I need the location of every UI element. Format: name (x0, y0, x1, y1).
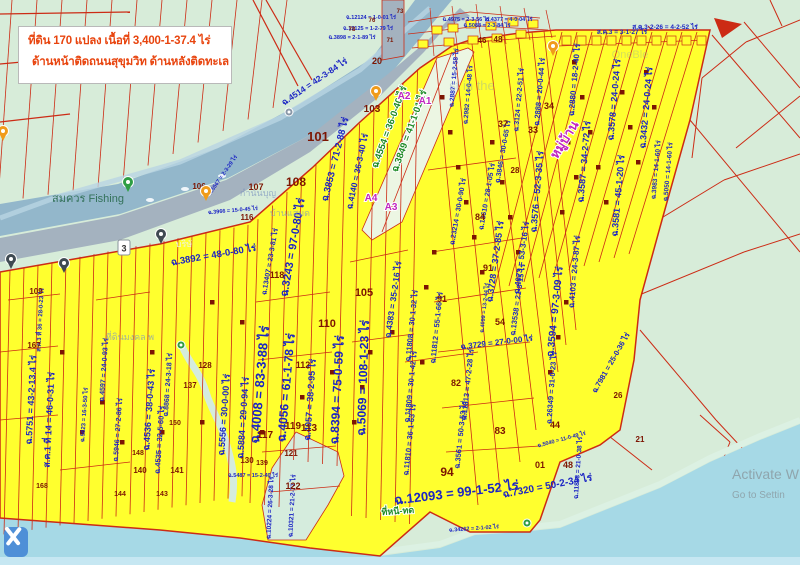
parcel-number: 119 (285, 421, 302, 432)
parcel-number: 37 (498, 119, 508, 129)
parcel-number: 01 (535, 460, 545, 470)
building-mark (210, 300, 215, 305)
parcel-number: 101 (307, 129, 329, 144)
parcel-number: 139 (256, 460, 268, 467)
building-mark (464, 200, 469, 205)
parcel-number: 150 (169, 420, 181, 427)
building-mark (490, 140, 495, 145)
parcel-area-label: ฉ.3898 = 2-1-89 ไร่ (329, 33, 376, 41)
parcel-number: 121 (284, 449, 298, 458)
land-summary-box: ที่ดิน 170 แปลง เนื้อที่ 3,400-1-37.4 ไร… (18, 26, 232, 84)
parcel-number: 20 (372, 56, 382, 66)
parcel-number: 118 (270, 270, 285, 280)
building-mark (580, 95, 585, 100)
building-mark (620, 90, 625, 95)
parcel-number: 76 (369, 18, 376, 24)
parcel-number: 137 (183, 381, 197, 390)
parcel-number: 73 (397, 9, 404, 15)
building-mark (652, 105, 657, 110)
zone-label: A4 (365, 193, 378, 204)
place-label: สมควร Fishing (52, 193, 124, 205)
parcel-number: 113 (301, 423, 318, 434)
parcel-number: 46 (478, 36, 487, 45)
small-parcel-cell (468, 36, 478, 44)
poi-pin-green[interactable] (177, 341, 185, 349)
pin-glyph (159, 232, 163, 236)
building-mark (200, 420, 205, 425)
parcel-number: 128 (198, 361, 212, 370)
parcel-number: 141 (170, 466, 184, 475)
pin-glyph (180, 344, 183, 347)
place-label: st in the (449, 78, 495, 93)
parcel-number: 84 (475, 212, 485, 222)
small-parcel-cell (697, 36, 706, 45)
place-label: ที่ดินมงคล พ (106, 330, 154, 342)
place-label: บริษั (176, 239, 193, 249)
pin-glyph (551, 44, 555, 48)
parcel-number: 82 (451, 378, 461, 388)
small-parcel-cell (592, 36, 601, 45)
building-mark (432, 250, 437, 255)
place-label: OneBle (612, 49, 649, 61)
poi-pin-green[interactable] (523, 519, 531, 527)
small-parcel-cell (562, 36, 571, 45)
small-parcel-cell (682, 36, 691, 45)
building-mark (472, 235, 477, 240)
pin-glyph (62, 261, 66, 265)
land-summary-line1: ที่ดิน 170 แปลง เนื้อที่ 3,400-1-37.4 ไร… (28, 34, 225, 49)
pin-glyph (126, 180, 130, 184)
parcel-area-label: ส.ค.3-2-26 = 4-2-52 ไร่ (632, 22, 698, 31)
parcel-area-label: ฉ.4377 = 4-0-04 ไร่ (486, 15, 533, 23)
parcel-number: 130 (240, 456, 254, 465)
place-label: บ้านแสมด (270, 208, 310, 218)
parcel-number: 117 (257, 430, 274, 441)
parcel-number: 143 (156, 491, 168, 498)
route-shield-number: 3 (121, 244, 126, 254)
parcel-number: 122 (285, 481, 300, 491)
building-mark (420, 360, 425, 365)
parcel-number: 94 (440, 465, 454, 479)
building-mark (240, 320, 245, 325)
parcel-number: 108 (286, 175, 306, 189)
building-mark (448, 130, 453, 135)
parcel-number: 148 (132, 450, 144, 457)
building-mark (456, 165, 461, 170)
zone-label: A3 (385, 202, 398, 213)
parcel-number: 116 (241, 213, 254, 222)
parcel-number: 54 (495, 317, 505, 327)
parcel-number: 48 (563, 460, 573, 470)
parcel-number: 167 (27, 341, 41, 350)
building-mark (60, 350, 65, 355)
zone-label: A2 (398, 91, 411, 102)
parcel-area-label: ฉ.5487 = 15-2-40 ไร่ (228, 471, 278, 479)
parcel-number: 109 (29, 287, 43, 296)
parcel-number: 91 (483, 263, 493, 273)
small-parcel-cell (516, 30, 526, 38)
parcel-number: 168 (36, 483, 48, 490)
pin-glyph (9, 257, 13, 261)
parcel-number: 144 (114, 491, 126, 498)
pin-glyph (374, 89, 378, 93)
boat (181, 187, 189, 191)
map-canvas[interactable]: ฉ.4514 = 42-3-84 ไร่ฉ.3853 = 71-2-88 ไร่… (0, 0, 800, 565)
small-parcel-cell (652, 36, 661, 45)
parcel-number: 26 (614, 391, 623, 400)
small-parcel-cell (444, 38, 454, 46)
pencil-ruler-icon (4, 527, 22, 547)
parcel-number: 71 (387, 38, 394, 44)
small-parcel-cell (607, 36, 616, 45)
building-mark (560, 210, 565, 215)
land-summary-line2: ด้านหน้าติดถนนสุขุมวิท ด้านหลังติดทะเล (28, 55, 225, 70)
pin-glyph (288, 111, 291, 114)
parcel-number: 78 (349, 27, 356, 33)
zone-label: A1 (419, 96, 432, 107)
parcel-number: 112 (296, 360, 311, 370)
small-parcel-cell (622, 36, 631, 45)
pin-glyph (526, 522, 529, 525)
building-mark (150, 350, 155, 355)
parcel-number: 28 (511, 166, 520, 175)
building-mark (636, 160, 641, 165)
small-parcel-cell (448, 24, 458, 32)
parcel-number: 91 (437, 294, 447, 304)
parcel-number: 48 (494, 35, 503, 44)
parcel-number: 34 (544, 101, 554, 111)
parcel-number: 107 (248, 182, 263, 192)
pin-glyph (1, 129, 5, 133)
small-parcel-cell (432, 26, 442, 34)
map-stage: ฉ.4514 = 42-3-84 ไร่ฉ.3853 = 71-2-88 ไร่… (0, 0, 800, 565)
parcel-number: 105 (355, 287, 373, 299)
pin-glyph (204, 189, 208, 193)
parcel-number: 110 (318, 318, 336, 330)
building-mark (440, 95, 445, 100)
building-mark (628, 125, 633, 130)
boat (146, 198, 154, 202)
building-mark (424, 285, 429, 290)
building-mark (300, 395, 305, 400)
parcel-number: 83 (494, 426, 506, 437)
poi-pin[interactable] (285, 108, 293, 116)
building-mark (596, 165, 601, 170)
parcel-number: 103 (364, 104, 381, 115)
small-parcel-cell (418, 40, 428, 48)
parcel-number: 33 (528, 125, 538, 135)
small-parcel-cell (637, 36, 646, 45)
parcel-number: 140 (133, 466, 147, 475)
building-mark (508, 215, 513, 220)
parcel-number: 44 (550, 420, 560, 430)
small-parcel-cell (667, 36, 676, 45)
parcel-area-label: ฉ.4975 = 2-3-56 ไร่ (443, 15, 490, 23)
sea-shallow-band (0, 557, 800, 565)
edit-tools-button[interactable] (4, 527, 28, 557)
parcel-number: 21 (636, 435, 645, 444)
building-mark (604, 200, 609, 205)
